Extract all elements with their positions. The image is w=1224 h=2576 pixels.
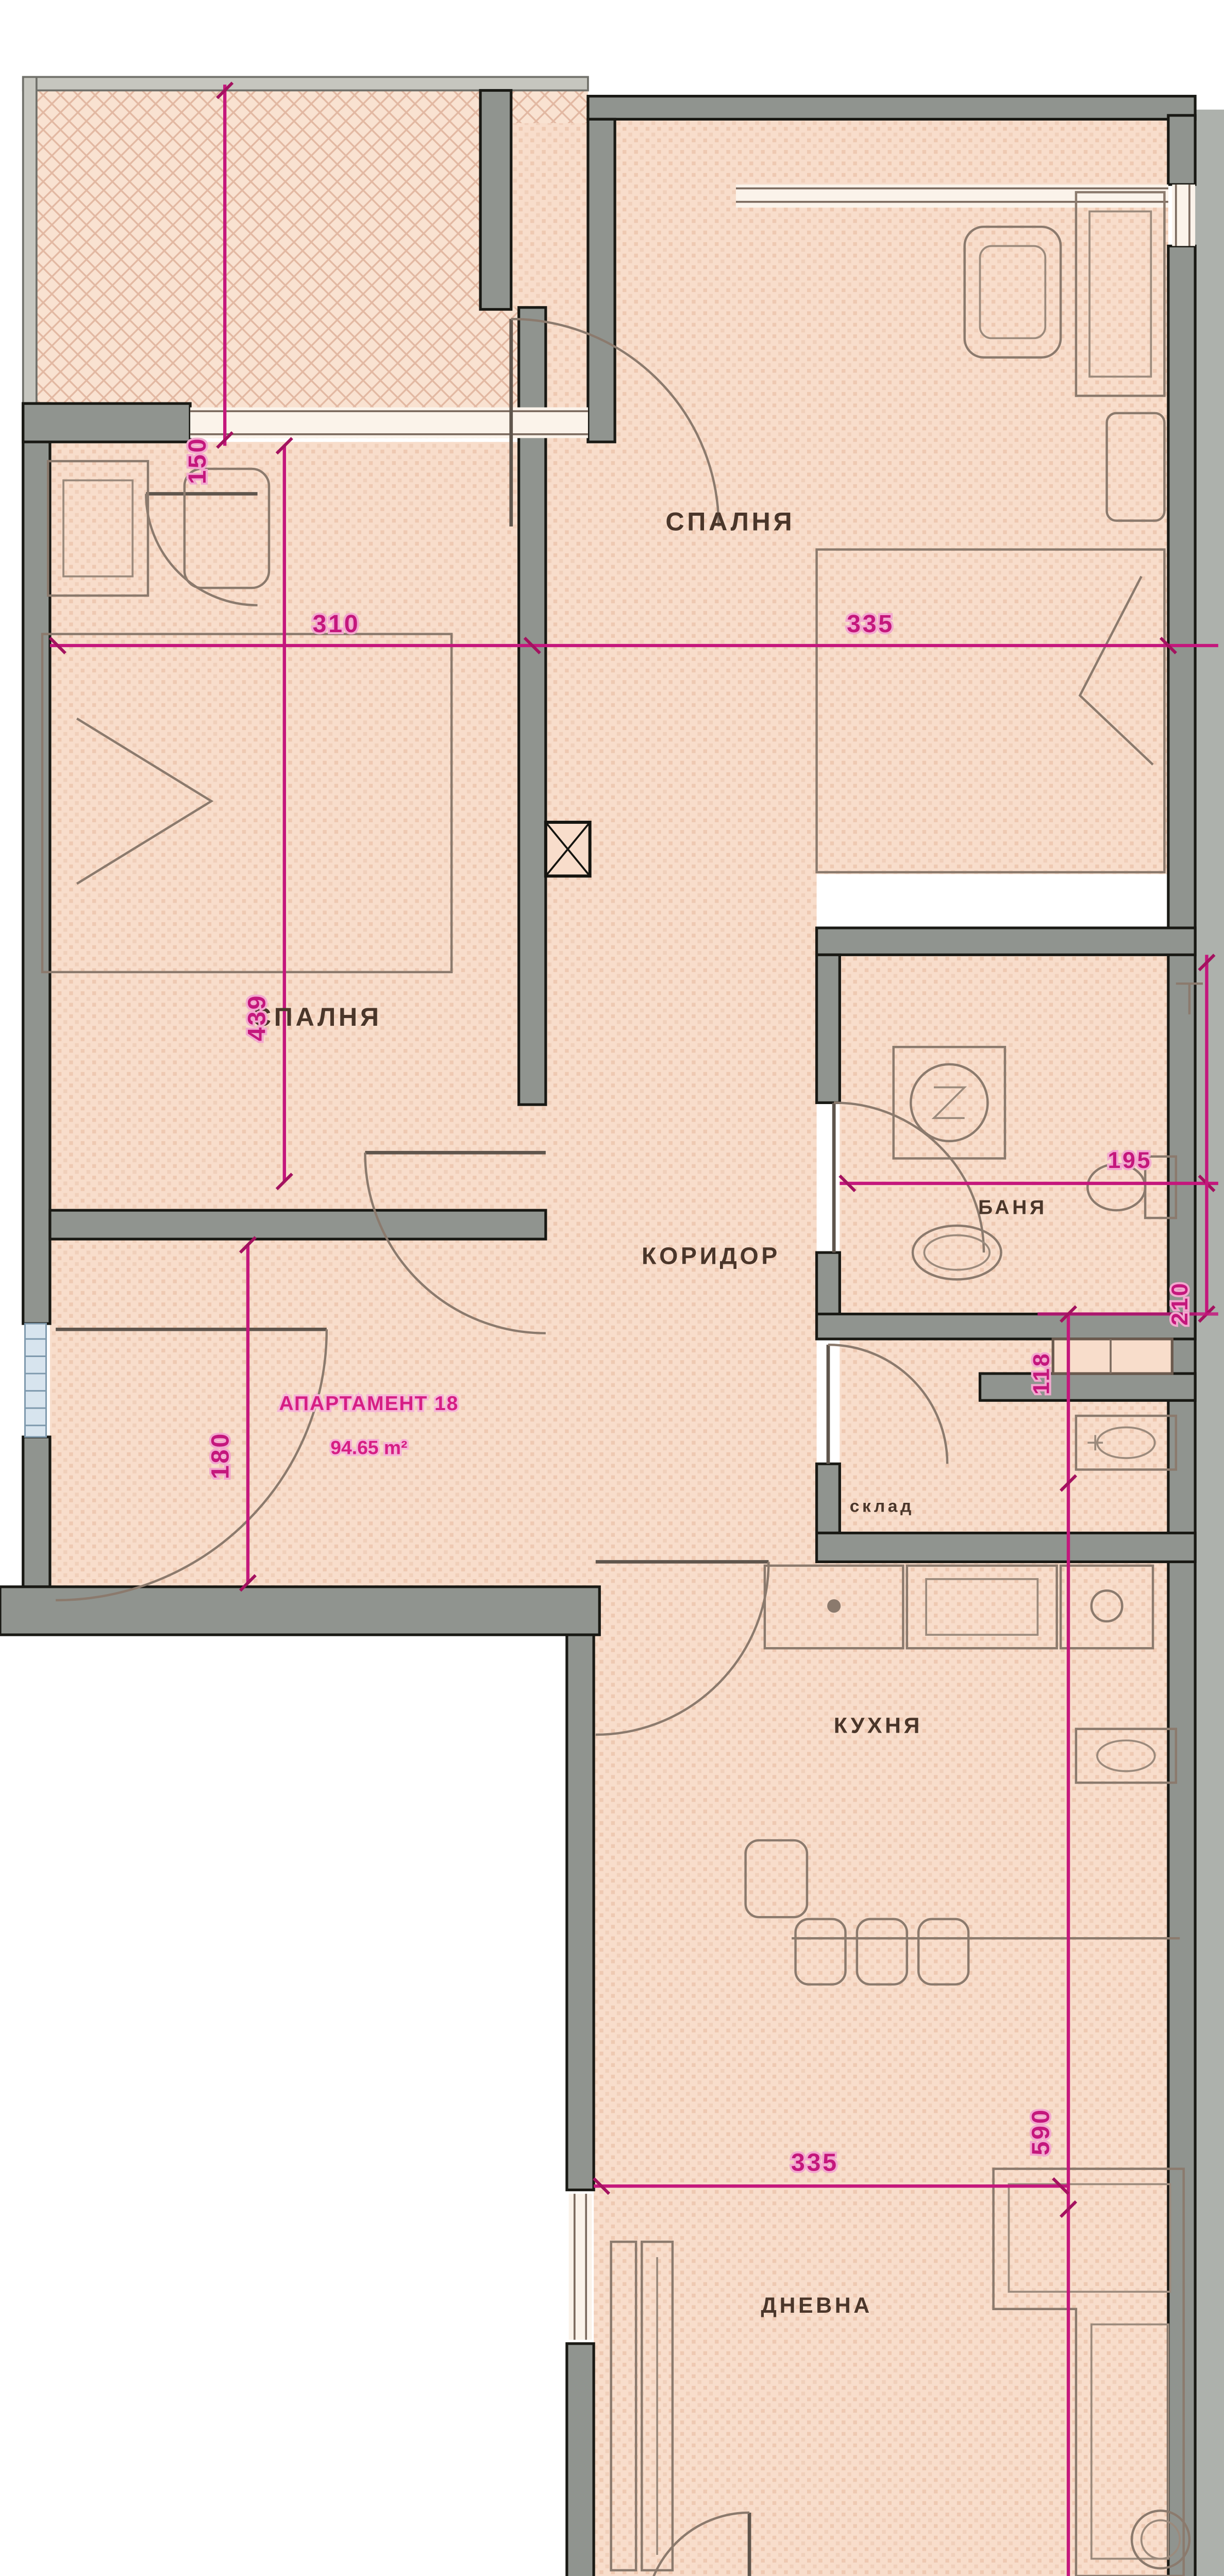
wall-shaft-bottom [980, 1374, 1195, 1400]
outer-wall-hall-bottom [0, 1587, 599, 1635]
wall-bath-top [817, 928, 1195, 955]
room-label-bedroom-left: СПАЛНЯ [253, 1002, 382, 1031]
room-label-bedroom-top: СПАЛНЯ [665, 506, 795, 536]
entry-door-glazing [25, 1324, 46, 1437]
dim-text-590: 590 [1027, 2108, 1055, 2155]
outer-wall-right-upper [1168, 115, 1195, 184]
room-label-bathroom: БАНЯ [978, 1197, 1047, 1219]
room-label-living: ДНЕВНА [761, 2293, 872, 2318]
dim-text-118: 118 [1029, 1352, 1054, 1395]
room-label-kitchen: КУХНЯ [834, 1713, 923, 1738]
dim-text-335-bottom: 335 [791, 2148, 839, 2176]
wall-balcony-column [480, 90, 511, 309]
dim-text-310: 310 [312, 610, 360, 638]
outer-wall-right-main [1168, 246, 1195, 2576]
window-bedroom-top-right [1172, 184, 1195, 246]
window-bedroom-top [736, 184, 1168, 208]
neighbor-wall-strip [1195, 110, 1224, 2576]
wall-living-left-upper [567, 1635, 594, 2190]
wall-stub-window-left [23, 403, 190, 442]
balcony-rail-left [23, 77, 37, 446]
apartment-area: 94.65 m² [330, 1437, 407, 1459]
room-label-storage: склад [850, 1497, 914, 1516]
outer-wall-top [588, 96, 1195, 120]
corridor-floor [546, 308, 817, 1587]
wall-balcony-right [588, 119, 615, 442]
balcony-rail-top [23, 77, 588, 90]
window-bedroom-left-top [190, 408, 588, 438]
wall-bedroom-left-bottom [50, 1210, 546, 1239]
apartment-title: АПАРТАМЕНТ 18 [279, 1393, 459, 1415]
wall-kitchen-top [817, 1533, 1195, 1562]
dim-text-439: 439 [243, 994, 271, 1041]
wall-bath-left-upper [817, 955, 840, 1103]
outer-wall-left-lower [23, 1437, 50, 1587]
dim-text-180: 180 [207, 1432, 234, 1479]
room-label-corridor: КОРИДОР [642, 1243, 780, 1269]
floor-plan: СПАЛНЯ СПАЛНЯ КОРИДОР БАНЯ склад КУХНЯ Д… [0, 0, 1224, 2576]
window-living-left [569, 2194, 592, 2340]
dim-text-210: 210 [1167, 1281, 1193, 1326]
dim-text-150: 150 [183, 437, 211, 484]
floor-plan-page: СПАЛНЯ СПАЛНЯ КОРИДОР БАНЯ склад КУХНЯ Д… [0, 0, 1224, 2576]
dim-text-195: 195 [1108, 1147, 1152, 1173]
outer-wall-left-upper [23, 403, 50, 1324]
nook-floor [511, 123, 588, 308]
closet-shaft-box [546, 822, 590, 876]
stove-icon [827, 1599, 841, 1613]
wall-storage-left [817, 1464, 840, 1533]
dim-text-335-top: 335 [847, 610, 894, 638]
wall-living-left-lower [567, 2344, 594, 2576]
wall-bath-bottom [817, 1314, 1195, 1338]
duct-niche-box [1053, 1339, 1172, 1374]
